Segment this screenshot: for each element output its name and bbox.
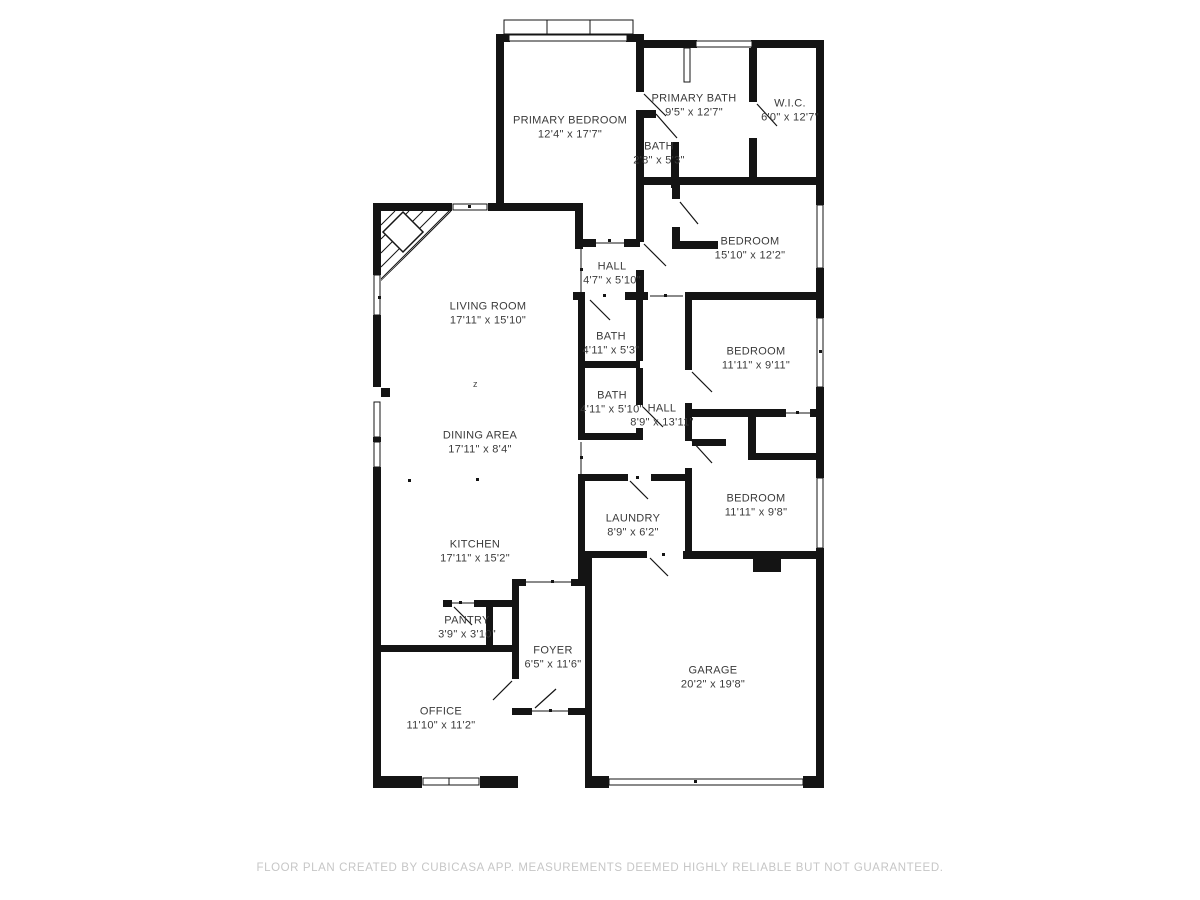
room-dimensions: 17'11" x 15'2" xyxy=(440,552,510,566)
room-name: LAUNDRY xyxy=(606,513,660,527)
room-label-hall-1: HALL4'7" x 5'10" xyxy=(583,261,641,288)
room-dimensions: 4'7" x 5'10" xyxy=(583,274,641,288)
room-label-laundry: LAUNDRY8'9" x 6'2" xyxy=(606,513,660,540)
room-dimensions: 9'5" x 12'7" xyxy=(652,106,737,120)
room-name: DINING AREA xyxy=(443,430,517,444)
room-label-hall-2: HALL8'9" x 13'11" xyxy=(630,403,693,430)
room-label-kitchen: KITCHEN17'11" x 15'2" xyxy=(440,539,510,566)
room-dimensions: 4'11" x 5'3" xyxy=(583,344,640,358)
room-label-primary-bath: PRIMARY BATH9'5" x 12'7" xyxy=(652,93,737,120)
room-name: BEDROOM xyxy=(715,236,786,250)
room-dimensions: 3'9" x 3'10" xyxy=(438,628,496,642)
room-label-office: OFFICE11'10" x 11'2" xyxy=(406,706,475,733)
room-label-pantry: PANTRY3'9" x 3'10" xyxy=(438,615,496,642)
footer-disclaimer: FLOOR PLAN CREATED BY CUBICASA APP. MEAS… xyxy=(0,862,1200,874)
room-name: BATH xyxy=(633,141,684,155)
room-label-foyer: FOYER6'5" x 11'6" xyxy=(525,645,582,672)
room-label-bath-1: BATH4'11" x 5'3" xyxy=(583,331,640,358)
room-dimensions: 17'11" x 15'10" xyxy=(450,314,527,328)
room-dimensions: 15'10" x 12'2" xyxy=(715,249,786,263)
room-dimensions: 6'0" x 12'7" xyxy=(761,111,819,125)
room-dimensions: 20'2" x 19'8" xyxy=(681,678,745,692)
room-label-bath-small: BATH2'8" x 5'3" xyxy=(633,141,684,168)
room-name: PRIMARY BATH xyxy=(652,93,737,107)
room-label-wic: W.I.C.6'0" x 12'7" xyxy=(761,98,819,125)
room-name: BATH xyxy=(583,331,640,345)
room-name: HALL xyxy=(583,261,641,275)
bay-window xyxy=(504,20,633,34)
room-name: BATH xyxy=(580,390,643,404)
room-label-dining-area: DINING AREA17'11" x 8'4" xyxy=(443,430,517,457)
room-dimensions: 8'9" x 13'11" xyxy=(630,416,693,430)
room-name: W.I.C. xyxy=(761,98,819,112)
z-marker: z xyxy=(473,379,478,389)
room-dimensions: 2'8" x 5'3" xyxy=(633,154,684,168)
room-name: BEDROOM xyxy=(725,493,788,507)
room-name: FOYER xyxy=(525,645,582,659)
corner-fireplace xyxy=(377,207,453,283)
floor-plan-page: PRIMARY BEDROOM12'4" x 17'7"PRIMARY BATH… xyxy=(0,0,1200,900)
room-label-garage: GARAGE20'2" x 19'8" xyxy=(681,665,745,692)
shower-glass xyxy=(684,48,690,82)
room-dimensions: 8'9" x 6'2" xyxy=(606,526,660,540)
room-dimensions: 11'10" x 11'2" xyxy=(406,719,475,733)
garage-door xyxy=(609,779,803,785)
room-name: PANTRY xyxy=(438,615,496,629)
room-label-primary-bedroom: PRIMARY BEDROOM12'4" x 17'7" xyxy=(513,115,627,142)
room-name: OFFICE xyxy=(406,706,475,720)
room-dimensions: 17'11" x 8'4" xyxy=(443,443,517,457)
room-label-living-room: LIVING ROOM17'11" x 15'10" xyxy=(450,301,527,328)
room-name: PRIMARY BEDROOM xyxy=(513,115,627,129)
room-name: GARAGE xyxy=(681,665,745,679)
room-dimensions: 11'11" x 9'11" xyxy=(722,359,790,373)
room-dimensions: 6'5" x 11'6" xyxy=(525,658,582,672)
room-name: BEDROOM xyxy=(722,346,790,360)
room-name: HALL xyxy=(630,403,693,417)
room-label-bedroom-2: BEDROOM11'11" x 9'11" xyxy=(722,346,790,373)
room-dimensions: 11'11" x 9'8" xyxy=(725,506,788,520)
room-name: KITCHEN xyxy=(440,539,510,553)
room-dimensions: 12'4" x 17'7" xyxy=(513,128,627,142)
room-name: LIVING ROOM xyxy=(450,301,527,315)
room-label-bedroom-3: BEDROOM11'11" x 9'8" xyxy=(725,493,788,520)
room-label-bedroom-1: BEDROOM15'10" x 12'2" xyxy=(715,236,786,263)
